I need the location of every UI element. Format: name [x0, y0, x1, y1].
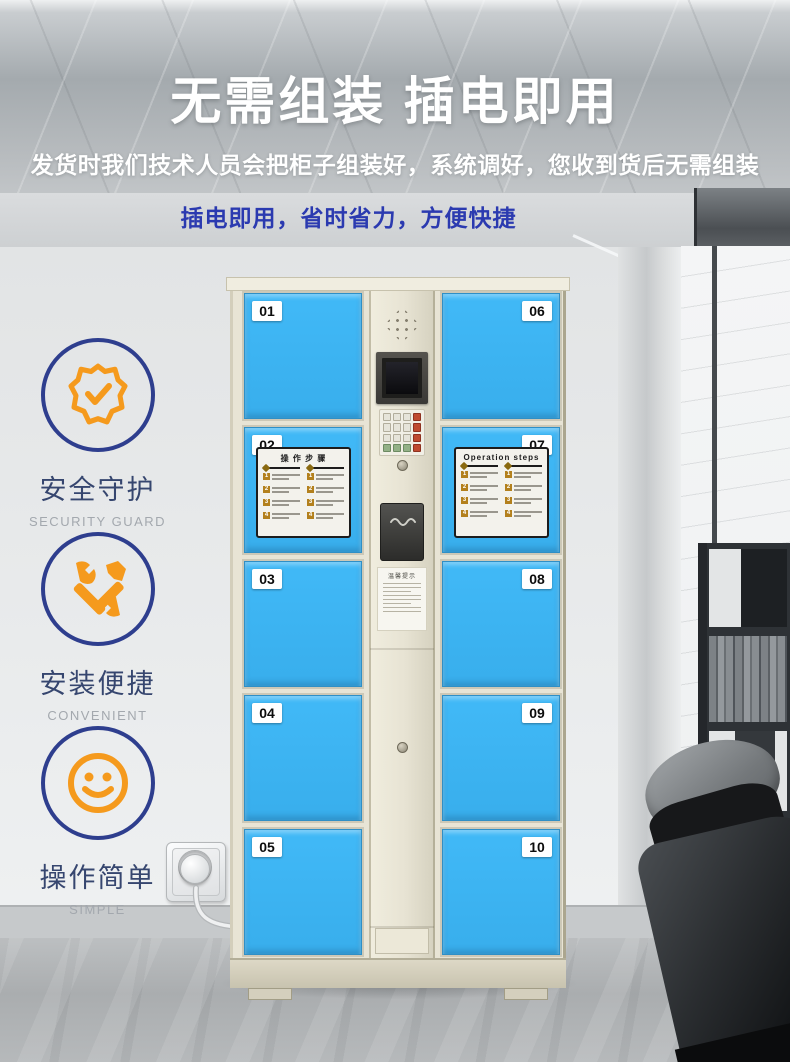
instruction-step: 2 [461, 484, 498, 493]
keypad-key [413, 413, 421, 421]
feature-label: 安装便捷 [15, 662, 180, 701]
feature-label: 安全守护 [15, 468, 180, 507]
instruction-step: 1 [263, 473, 300, 482]
notice-label: 温馨提示 [377, 567, 427, 631]
locker-door-02: 02操 作 步 骤12341234 [244, 427, 362, 553]
feature-label: 操作简单 [15, 856, 180, 895]
step-number: 4 [505, 510, 512, 517]
instruction-step: 2 [307, 486, 344, 495]
screen-glass [386, 362, 418, 394]
instruction-step: 2 [505, 484, 542, 493]
shelf-books [709, 636, 787, 722]
keypad-key [383, 413, 391, 421]
locker-door-10: 10 [442, 829, 560, 955]
instruction-panel: Operation steps12341234 [454, 447, 549, 538]
step-number: 1 [505, 471, 512, 478]
feature-sublabel: SIMPLE [15, 902, 180, 917]
keypad-key [403, 434, 411, 442]
keypad-key [393, 444, 401, 452]
instruction-step: 1 [307, 473, 344, 482]
instruction-step: 3 [263, 499, 300, 508]
step-number: 3 [505, 497, 512, 504]
locker-top-panel [226, 277, 570, 291]
keypad-key [403, 413, 411, 421]
step-text-lines [272, 512, 300, 521]
banner-text: 插电即用，省时省力，方便快捷 [0, 199, 697, 233]
keypad-key [383, 423, 391, 431]
notice-title: 温馨提示 [382, 571, 422, 580]
keypad-key [383, 434, 391, 442]
step-number: 4 [307, 512, 314, 519]
keypad-key [383, 444, 391, 452]
locker-door-07: 07Operation steps12341234 [442, 427, 560, 553]
keypad-key [393, 413, 401, 421]
instruction-step: 4 [263, 512, 300, 521]
shelf-cell [709, 549, 787, 627]
locker-door-05: 05 [244, 829, 362, 955]
step-text-lines [272, 499, 300, 508]
step-text-lines [470, 497, 498, 506]
keypad-key [413, 423, 421, 431]
feature-item: 安全守护SECURITY GUARD [15, 338, 180, 529]
step-number: 2 [461, 484, 468, 491]
step-number: 2 [307, 486, 314, 493]
keypad-key [413, 434, 421, 442]
keypad-key [413, 444, 421, 452]
step-number: 3 [307, 499, 314, 506]
instruction-step: 4 [505, 510, 542, 519]
locker-foot [248, 988, 292, 1000]
page-title: 无需组装 插电即用 [0, 60, 790, 134]
keypad-key [403, 423, 411, 431]
door-number: 08 [522, 569, 552, 589]
locker-door-08: 08 [442, 561, 560, 687]
wall-socket [166, 842, 226, 902]
door-number: 06 [522, 301, 552, 321]
step-text-lines [514, 471, 542, 480]
tools-icon [41, 532, 155, 646]
locker-base [230, 958, 566, 988]
step-text-lines [470, 510, 498, 519]
card-reader [380, 503, 424, 561]
card-swipe-icon [381, 504, 425, 562]
step-number: 1 [307, 473, 314, 480]
panel-seam [370, 648, 434, 650]
ceiling-beam [694, 188, 790, 246]
keyhole-icon [397, 460, 408, 471]
instruction-step: 4 [461, 510, 498, 519]
locker-door-01: 01 [244, 293, 362, 419]
step-text-lines [514, 484, 542, 493]
instruction-step: 2 [263, 486, 300, 495]
display-screen [376, 352, 428, 404]
step-number: 2 [263, 486, 270, 493]
column-bottom-panel [375, 928, 429, 954]
door-number: 09 [522, 703, 552, 723]
instruction-step: 1 [461, 471, 498, 480]
step-number: 2 [505, 484, 512, 491]
step-text-lines [316, 473, 344, 482]
keypad-key [393, 434, 401, 442]
instruction-step: 1 [505, 471, 542, 480]
instruction-panel-title: 操 作 步 骤 [263, 453, 344, 464]
door-number: 03 [252, 569, 282, 589]
locker-door-06: 06 [442, 293, 560, 419]
feature-item: 安装便捷CONVENIENT [15, 532, 180, 723]
instruction-step: 3 [461, 497, 498, 506]
shelf-frame-pole [712, 246, 717, 546]
chair-backrest [633, 806, 790, 1062]
step-number: 4 [461, 510, 468, 517]
locker-foot [504, 988, 548, 1000]
instruction-panel: 操 作 步 骤12341234 [256, 447, 351, 538]
step-number: 1 [263, 473, 270, 480]
keypad-key [393, 423, 401, 431]
step-text-lines [272, 486, 300, 495]
step-text-lines [272, 473, 300, 482]
step-text-lines [470, 484, 498, 493]
step-text-lines [514, 497, 542, 506]
locker-door-03: 03 [244, 561, 362, 687]
smiley-icon [41, 726, 155, 840]
step-number: 3 [263, 499, 270, 506]
keypad [379, 409, 425, 456]
keypad-key [403, 444, 411, 452]
power-plug [180, 854, 210, 884]
step-number: 4 [263, 512, 270, 519]
step-text-lines [316, 512, 344, 521]
feature-item: 操作简单SIMPLE [15, 726, 180, 917]
instruction-step: 3 [505, 497, 542, 506]
step-text-lines [316, 499, 344, 508]
door-number: 05 [252, 837, 282, 857]
office-chair [616, 728, 790, 1062]
page-subtitle: 发货时我们技术人员会把柜子组装好，系统调好，您收到货后无需组装 [0, 146, 790, 180]
door-number: 04 [252, 703, 282, 723]
step-text-lines [316, 486, 344, 495]
feature-sublabel: CONVENIENT [15, 708, 180, 723]
shield-check-icon [41, 338, 155, 452]
door-number: 01 [252, 301, 282, 321]
keyhole-icon [397, 742, 408, 753]
instruction-step: 3 [307, 499, 344, 508]
instruction-panel-title: Operation steps [461, 453, 542, 462]
locker-door-09: 09 [442, 695, 560, 821]
step-number: 3 [461, 497, 468, 504]
locker-door-04: 04 [244, 695, 362, 821]
feature-sublabel: SECURITY GUARD [15, 514, 180, 529]
instruction-step: 4 [307, 512, 344, 521]
product-detail-image: 无需组装 插电即用 发货时我们技术人员会把柜子组装好，系统调好，您收到货后无需组… [0, 0, 790, 1062]
step-text-lines [470, 471, 498, 480]
step-number: 1 [461, 471, 468, 478]
door-number: 10 [522, 837, 552, 857]
step-text-lines [514, 510, 542, 519]
